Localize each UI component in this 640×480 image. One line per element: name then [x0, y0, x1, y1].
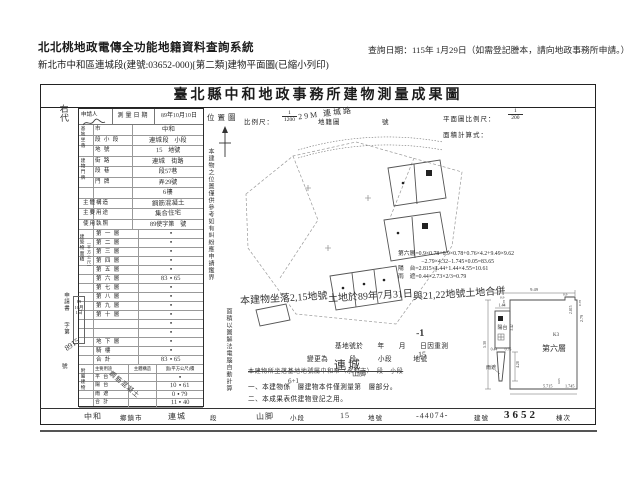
floor-label: 第 六 層: [93, 275, 139, 283]
decimal-point: •: [170, 293, 172, 301]
printed-text: 弄: [159, 180, 165, 186]
field-value: 弄29號: [133, 178, 203, 188]
floor-area-value: •: [139, 284, 203, 292]
calc-line: 第六層=0.9×0.78+0.9×0.78+0.76×4.2+9.49×9.62: [398, 251, 598, 259]
decimal-point: •: [177, 391, 179, 399]
handwritten-value: 鋼筋混凝土: [152, 199, 185, 209]
stamp-line: 89: [77, 299, 82, 304]
floor-row: 地 下 層•: [79, 338, 203, 347]
dim-balcony-h: 3.42: [510, 324, 514, 331]
query-date-note: 查詢日期：115年 1月29日（如需登記謄本，請向地政事務所申請。）: [368, 43, 629, 56]
decimal-point: •: [179, 374, 181, 382]
footer-label: 棟次: [556, 412, 571, 422]
annex-structure: [129, 399, 157, 407]
floor-label: 地 下 層: [93, 338, 139, 346]
field-label: 主要用途: [81, 209, 133, 219]
floor-row: 騎 樓•: [79, 347, 203, 356]
plan-scale-label: 平面圖比例尺：: [443, 113, 496, 123]
printed-text: 段: [159, 169, 165, 175]
annex-row: 合 計11•40: [79, 399, 203, 408]
annex-area-value: 10•61: [157, 382, 203, 390]
floor-area-value: •: [139, 329, 203, 337]
field-value: 連城段 小段: [133, 136, 203, 146]
annex-area-value: •: [157, 374, 203, 382]
footer-label: 3652: [504, 409, 538, 421]
dim-bottom-1: 5.715: [543, 384, 552, 389]
floor-label: 第 八 層: [93, 293, 139, 301]
floor-area-value: •: [139, 239, 203, 247]
field-value: 6樓: [133, 188, 203, 198]
form-row: 段 巷段57巷: [79, 167, 203, 178]
floor-row: •: [79, 320, 203, 329]
form-row: 市中和: [79, 125, 203, 136]
floor-area-value: •: [139, 257, 203, 265]
form-row: 街 路連城 街路: [79, 157, 203, 168]
form-row: 地 號15 地號: [79, 146, 203, 157]
site-group-label: 基地坐落: [80, 126, 86, 154]
field-label: 地 號: [93, 146, 133, 156]
application-hao-label: 號: [62, 362, 69, 370]
footer-handwritten-value: 中和: [84, 411, 102, 423]
dim-overall-width: 9.49: [530, 287, 539, 292]
area-decimal: 79: [181, 391, 188, 399]
form-rows: 市中和段 小 段連城段 小段地 號15 地號街 路連城 街路段 巷段57巷門 牌…: [79, 125, 203, 230]
dim-notch2-w: 0.9: [563, 293, 568, 297]
footer-handwritten-value: 連城: [168, 411, 186, 423]
floor-label: 第 二 層: [93, 239, 139, 247]
location-scale-label: 比例尺：: [244, 116, 274, 126]
cadastre-no-label: 號: [382, 116, 390, 126]
annex-use: 合 計: [93, 399, 129, 407]
form-row: 段 小 段連城段 小段: [79, 136, 203, 147]
floor-row: 第 一 層•: [79, 230, 203, 239]
stamp-line: 1日: [76, 310, 83, 315]
decimal-point: •: [170, 320, 172, 328]
annex-row: 陽 台10•61: [79, 382, 203, 391]
scale-numerator: 1: [282, 110, 297, 117]
floor-area-value: •: [139, 302, 203, 310]
dim-bottom-3: 0.05: [557, 378, 561, 384]
decimal-point: •: [170, 311, 172, 319]
floor-label: 合 計: [93, 356, 139, 364]
printed-text: 號: [171, 180, 177, 186]
handwritten-value: 集合住宅: [155, 209, 181, 219]
printed-text: 使字第: [156, 222, 174, 228]
scale-denominator: 1200: [282, 117, 297, 123]
floor-label: 第 一 層: [93, 230, 139, 238]
floor-label: 第 四 層: [93, 257, 139, 265]
floor-area-value: •: [139, 311, 203, 319]
floor-area-value: •: [139, 248, 203, 256]
printed-text: 日: [191, 113, 197, 119]
floor-label: [93, 320, 139, 328]
handwritten-value: 連城: [149, 136, 162, 146]
floor-plan-drawing: 9.49 0.9 0.78 0.9 0.78 2.815 1.44 3.42 5…: [455, 286, 590, 410]
area-method-note: 面積以圖解法電腦自動計算: [224, 308, 233, 410]
field-label: 主體構造: [81, 199, 133, 209]
dim-eave-w2: 0.76: [505, 348, 512, 352]
plan-scale-denominator: 200: [508, 115, 523, 121]
position-disclaimer-note: 本建物之位置僅供參考如有糾紛應申請鑑界: [206, 148, 215, 334]
field-label: 段 小 段: [93, 136, 133, 146]
measured-floor-hand: 6+1: [288, 377, 299, 385]
decimal-point: •: [170, 347, 172, 355]
floor-row: 第 四 層•: [79, 257, 203, 266]
floor-label: [93, 329, 139, 337]
printed-text: 地號: [162, 148, 180, 154]
floor-area-value: •: [139, 347, 203, 355]
annex-area-value: 11•40: [157, 399, 203, 407]
k3-label: K3: [553, 333, 560, 338]
floor-area-value: •: [139, 338, 203, 346]
decimal-point: •: [170, 248, 172, 256]
area-decimal: 61: [183, 382, 190, 390]
floor-row: 第 七 層•: [79, 284, 203, 293]
floor-area-rows: 第 一 層•第 二 層•第 三 層•第 四 層•第 五 層•第 六 層83•65…: [79, 230, 203, 365]
calc-line: 陽 台=2.815×1.44+1.44×4.55=10.61: [398, 266, 598, 274]
area-decimal: 40: [183, 399, 190, 407]
handwritten-value: 15: [156, 146, 163, 156]
resurvey-hand-mark: -1: [416, 328, 425, 339]
field-value: 89使字第 號: [133, 220, 203, 230]
area-integer: 83: [161, 275, 168, 283]
resurvey-parcel-hand: 15: [418, 350, 426, 359]
area-calculation: 第六層=0.9×0.78+0.9×0.78+0.76×4.2+9.49×9.62…: [398, 251, 598, 281]
annex-use: 雨 遮: [93, 391, 129, 399]
field-value: 段57巷: [133, 167, 203, 177]
footer-handwritten-value: -44074-: [416, 410, 449, 420]
area-decimal: 65: [174, 356, 181, 364]
printed-text: 樓: [167, 190, 173, 196]
floor-label: 第 五 層: [93, 266, 139, 274]
handwritten-value: 中和: [161, 125, 174, 135]
field-label: 街 路: [93, 157, 133, 167]
decimal-point: •: [170, 329, 172, 337]
annex-structure-header: 主體構造: [129, 365, 157, 373]
dim-notch2-d: 0.78: [578, 300, 582, 306]
dim-balcony-w: 1.44: [499, 303, 506, 308]
footer-label: 鄉鎮市: [120, 412, 143, 422]
building-info-table: 申請人 測量日期 89年10月10日 市中和段 小 段連城段 小段地 號15 地…: [78, 108, 204, 407]
form-row: 使用執照89使字第 號: [79, 220, 203, 231]
decimal-point: •: [179, 399, 181, 407]
floor-row: 第 三 層•: [79, 248, 203, 257]
decimal-point: •: [170, 257, 172, 265]
handwritten-value: 57: [165, 167, 172, 177]
floor-area-value: •: [139, 293, 203, 301]
area-integer: 0: [172, 391, 176, 399]
dim-notch-w: 0.9: [500, 296, 505, 300]
decimal-point: •: [170, 275, 172, 283]
document-subtitle: 新北市中和區連城段(建號:03652-000)[第二類]建物平面圖(已縮小列印): [38, 57, 329, 71]
form-row: 主體構造鋼筋混凝土: [79, 199, 203, 210]
application-zi-label: 字第: [62, 322, 70, 336]
footer-label: 地號: [368, 412, 383, 422]
floor-label: 第 九 層: [93, 302, 139, 310]
handwritten-value: 連城: [152, 157, 165, 167]
calc-line: 雨 遮=0.44×2.73×2/3=0.79: [398, 274, 598, 282]
floor-label: 騎 樓: [93, 347, 139, 355]
handwritten-value: 29: [165, 178, 172, 188]
document-title: 臺北縣中和地政事務所建物測量成果圖: [40, 84, 596, 108]
floor-area-value: •: [139, 320, 203, 328]
applicant-cell: 申請人: [79, 109, 113, 125]
annex-row: 平 台•: [79, 374, 203, 383]
dim-eave-h: 4.28: [516, 361, 520, 368]
field-value: 集合住宅: [133, 209, 203, 219]
floor-row: 第 十 層•: [79, 311, 203, 320]
printed-text: 段 小段: [162, 138, 186, 144]
survey-date-value: 89年10月10日: [155, 109, 203, 125]
decimal-point: •: [170, 284, 172, 292]
plan-scale-fraction: 1 200: [508, 108, 523, 121]
form-row: 主要用途集合住宅: [79, 209, 203, 220]
form-row: 6樓: [79, 188, 203, 199]
decimal-point: •: [170, 356, 172, 364]
field-value: 15 地號: [133, 146, 203, 156]
floor-area-value: 83•65: [139, 356, 203, 364]
print-bottom-rule: [40, 430, 597, 432]
form-row: 門 牌弄29號: [79, 178, 203, 189]
decimal-point: •: [170, 230, 172, 238]
location-scale-fraction: 1 1200: [282, 110, 297, 123]
handwritten-value: 10: [185, 109, 192, 124]
printed-text: 巷: [171, 169, 177, 175]
floor-label: 第 七 層: [93, 284, 139, 292]
annex-header-row: 主要用途主體構造面(平方公尺)積: [79, 365, 203, 374]
field-value: 連城 街路: [133, 157, 203, 167]
handwritten-value: 10: [173, 109, 180, 124]
floor-label: 第 三 層: [93, 248, 139, 256]
system-title: 北北桃地政電傳全功能地籍資料查詢系統: [38, 39, 254, 55]
annex-structure: [129, 374, 157, 382]
dim-left-height: 5.30: [482, 341, 487, 348]
floor-label: 第 十 層: [93, 311, 139, 319]
annex-building-rows: 主要用途主體構造面(平方公尺)積平 台•陽 台10•61雨 遮0•79合 計11…: [79, 365, 203, 408]
field-label: 市: [93, 125, 133, 135]
plan-scale-numerator: 1: [508, 108, 523, 115]
handwritten-value: 89: [150, 220, 157, 230]
resurvey-note-line1: 基地號於 年 月 日因重測: [335, 340, 449, 350]
floor-area-value: •: [139, 230, 203, 238]
dim-bottom-2: 1.745: [565, 384, 574, 389]
handwritten-value: 89: [161, 109, 168, 124]
dim-eave-w1: 0.44: [491, 348, 498, 352]
field-label: 使用執照: [81, 220, 133, 230]
floor-row: 第 九 層•: [79, 302, 203, 311]
north-compass-icon: [218, 124, 232, 160]
field-value: 中和: [133, 125, 203, 135]
decimal-point: •: [179, 382, 181, 390]
resurvey-note-line2: 變更為 段 小段 地號: [307, 353, 428, 363]
area-integer: 83: [161, 356, 168, 364]
margin-note: 右代: [57, 104, 71, 134]
old-section-note-struck: 本建物所坐落基地地號屬中和市（永和市） 段 小段: [248, 366, 403, 375]
measured-floor-note: 一、本建物係 層建物本件僅測量第 層部分。: [248, 381, 397, 391]
balcony-label: 陽台: [497, 324, 507, 331]
decimal-point: •: [170, 239, 172, 247]
field-value: 鋼筋混凝土: [133, 199, 203, 209]
location-map-label: 位置圖: [207, 112, 239, 123]
survey-date-label: 測量日期: [113, 109, 155, 125]
application-label: 申請書: [62, 292, 70, 316]
footer-handwritten-value: 山脚: [256, 411, 274, 423]
footer-location-strip: 中和鄉鎮市連城段山脚小段15地號-44074-建號3652棟次: [40, 408, 596, 425]
dim-top-right: 2.815: [569, 305, 573, 314]
annex-side-label: 附屬建物: [80, 368, 86, 404]
floor-row: 第 五 層•: [79, 266, 203, 275]
printed-text: 號: [174, 222, 186, 228]
floor-row: •: [79, 329, 203, 338]
floor-area-side-label: 建築物面積: [79, 234, 85, 296]
dim-right-top: 2.79: [579, 315, 584, 322]
printed-text: 街路: [165, 159, 183, 165]
address-group-label: 建物門牌: [80, 158, 86, 196]
decimal-point: •: [170, 266, 172, 274]
eave-label: 雨遮: [486, 364, 496, 371]
field-label: 段 巷: [93, 167, 133, 177]
footer-label: 小段: [290, 412, 305, 422]
field-label: [93, 188, 133, 198]
footer-label: 段: [210, 412, 218, 422]
registration-purpose-note: 二、本成果表供建物登記之用。: [248, 393, 347, 403]
floor-row: 第 八 層•: [79, 293, 203, 302]
stamp-line: 10月: [75, 305, 84, 310]
annex-area-value: 0•79: [157, 391, 203, 399]
floor-area-value: •: [139, 266, 203, 274]
footer-label: 建號: [474, 412, 489, 422]
floor-area-unit-label: （平方公尺）: [86, 240, 92, 296]
floor-row: 第 六 層83•65: [79, 275, 203, 284]
area-integer: 11: [170, 399, 177, 407]
area-integer: 10: [170, 382, 177, 390]
area-formula-label: 面積計算式：: [443, 129, 488, 139]
decimal-point: •: [170, 338, 172, 346]
floor-area-value: 83•65: [139, 275, 203, 283]
annex-area-header: 面(平方公尺)積: [157, 365, 203, 373]
area-decimal: 65: [174, 275, 181, 283]
decimal-point: •: [170, 302, 172, 310]
floor-label: 第六層: [542, 343, 566, 353]
field-label: 門 牌: [93, 178, 133, 188]
footer-handwritten-value: 15: [340, 411, 350, 420]
floor-row: 合 計83•65: [79, 356, 203, 365]
floor-row: 第 二 層•: [79, 239, 203, 248]
